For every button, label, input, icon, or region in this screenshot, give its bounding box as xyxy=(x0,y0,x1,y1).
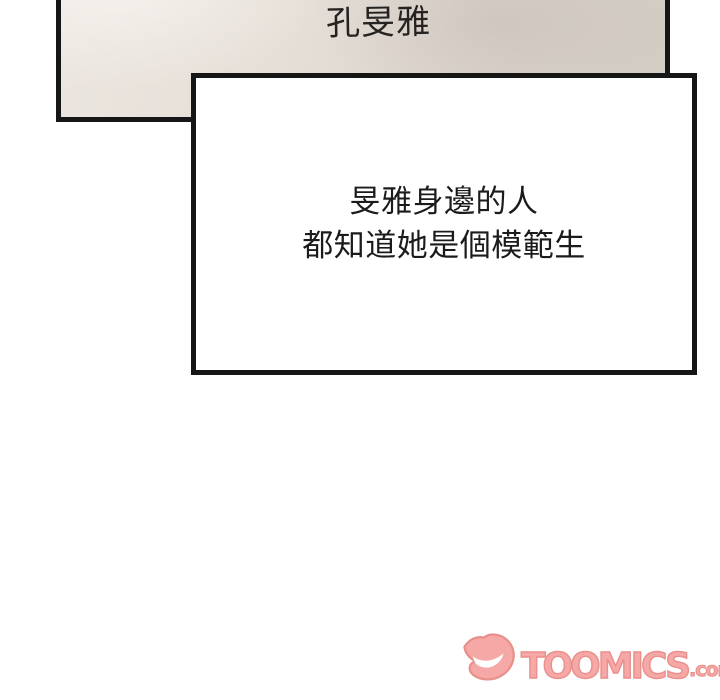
character-name-text: 孔旻雅 xyxy=(326,0,432,45)
narration-line-2: 都知道她是個模範生 xyxy=(302,224,586,268)
comic-page: 孔旻雅 旻雅身邊的人 都知道她是個模範生 TOOMICS .com xyxy=(0,0,720,700)
watermark-suffix-text: .com xyxy=(689,661,720,680)
narration-text: 旻雅身邊的人 都知道她是個模範生 xyxy=(302,180,586,268)
watermark-brand-text: TOOMICS xyxy=(521,651,688,683)
narration-line-1: 旻雅身邊的人 xyxy=(302,180,586,224)
toomics-logo-icon xyxy=(461,632,518,684)
toomics-watermark: TOOMICS .com xyxy=(461,632,720,684)
narration-box: 旻雅身邊的人 都知道她是個模範生 xyxy=(191,73,697,375)
